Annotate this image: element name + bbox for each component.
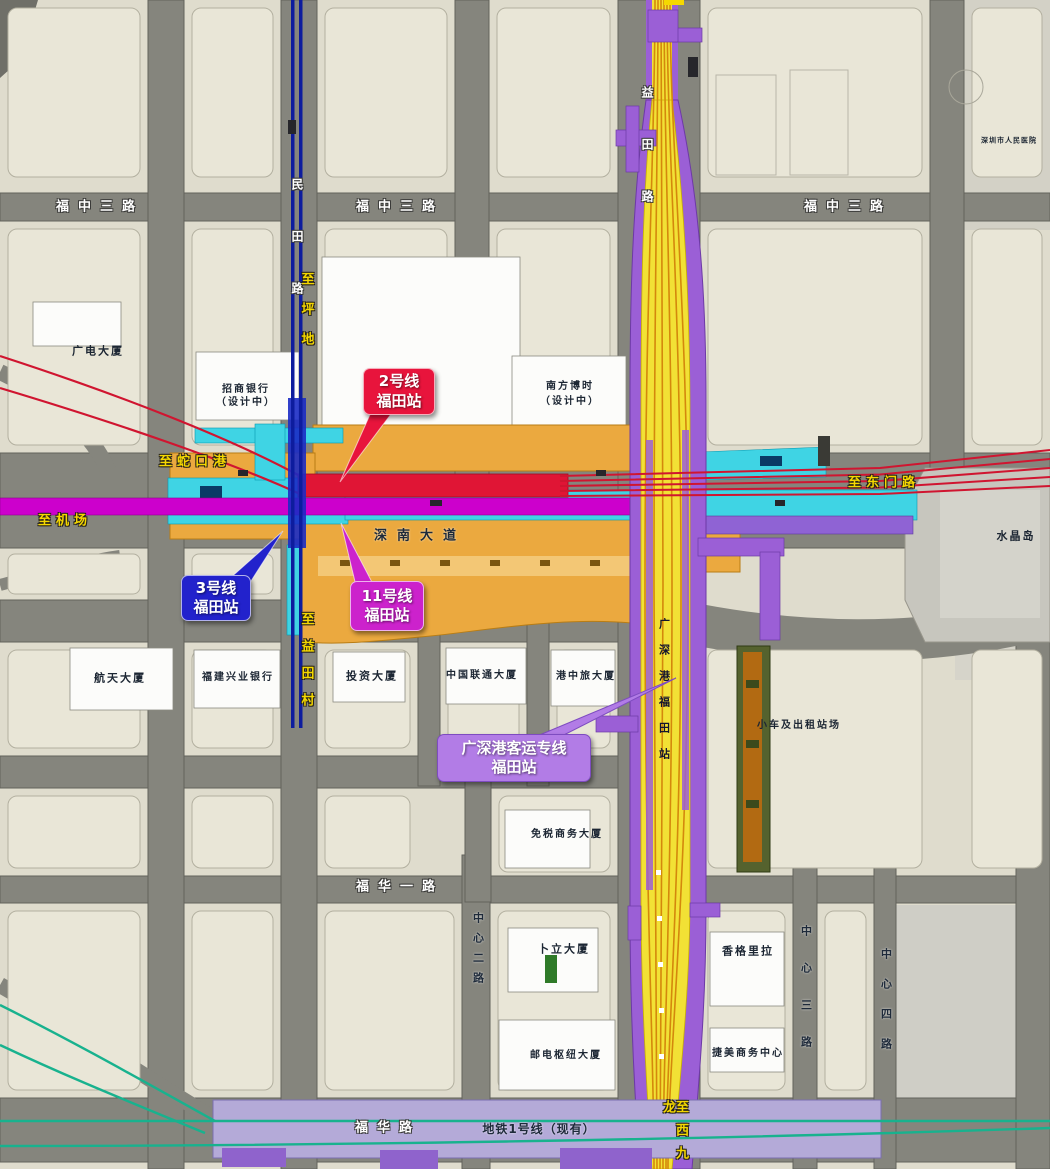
transit-plan-map: 2号线 福田站 3号线 福田站 11号线 福田站 广深港客运专线 福田站 福中三… <box>0 0 1050 1169</box>
direction-label-west-kowloon: 至西九龙 <box>661 1100 687 1169</box>
building-label-jiemei-center: 捷美商务中心 <box>712 1049 784 1059</box>
road-label-fuzhong3-east: 福中三路 <box>804 201 892 214</box>
road-label-fuzhong3-west: 福中三路 <box>56 201 144 214</box>
direction-label-dongmen: 至东门路 <box>848 477 920 490</box>
callout-line2-line2: 福田站 <box>364 392 434 412</box>
road-label-yitian: 益田路 <box>641 86 653 242</box>
road-label-zhongxin4: 中心四路 <box>881 948 892 1068</box>
road-label-fuzhong3-mid: 福中三路 <box>356 201 444 214</box>
direction-label-shekou-port: 至蛇口港 <box>159 456 231 469</box>
area-label-crystal-island: 水晶岛 <box>997 531 1036 542</box>
road-label-zhongxin3: 中心三路 <box>801 925 812 1073</box>
metro-line1-existing-label: 地铁1号线（现有） <box>482 1123 595 1135</box>
building-label-touzi: 投资大厦 <box>346 671 398 682</box>
building-label-buli: 卜立大厦 <box>538 944 590 955</box>
area-label-car-taxi-yard: 小车及出租站场 <box>757 721 841 731</box>
callout-hsr-line1: 广深港客运专线 <box>438 739 590 759</box>
direction-label-yitiancun: 至益田村 <box>300 612 313 720</box>
callout-line11-futian-station: 11号线 福田站 <box>350 581 424 631</box>
direction-label-airport: 至机场 <box>38 515 92 528</box>
building-label-youdian-hub: 邮电枢纽大厦 <box>530 1051 602 1061</box>
hsr-station-vertical-label: 广深港福田站 <box>659 618 670 774</box>
road-label-zhongxin2: 中心二路 <box>473 912 484 992</box>
callout-line3-line1: 3号线 <box>182 579 250 599</box>
callout-line3-futian-station: 3号线 福田站 <box>181 575 251 621</box>
building-label-nanfang-note: （设计中） <box>540 397 600 407</box>
building-label-mianshui: 免税商务大厦 <box>531 830 603 840</box>
building-label-gangzhonglv: 港中旅大厦 <box>556 672 616 682</box>
road-label-fuhua: 福华路 <box>355 1122 421 1135</box>
direction-label-pingdi: 至坪地 <box>300 272 313 362</box>
callout-hsr-line2: 福田站 <box>438 758 590 778</box>
building-label-nanfang-boshi: 南方博时 <box>546 382 594 392</box>
building-label-shangrila: 香格里拉 <box>722 946 774 957</box>
building-label-zhaoshang-note: （设计中） <box>216 398 276 408</box>
building-label-renmin: 深圳市人民医院 <box>981 138 1037 145</box>
building-label-fujian-xingye-bank: 福建兴业银行 <box>202 673 274 683</box>
callout-line11-line2: 福田站 <box>351 606 423 626</box>
callout-hsr-futian-station: 广深港客运专线 福田站 <box>437 734 591 782</box>
callout-line2-line1: 2号线 <box>364 372 434 392</box>
building-label-guangdian: 广电大厦 <box>72 346 124 357</box>
building-label-zhaoshang-bank: 招商银行 <box>222 385 270 395</box>
road-label-fuhua1: 福华一路 <box>356 881 444 894</box>
callout-line3-line2: 福田站 <box>182 598 250 618</box>
building-label-china-unicom: 中国联通大厦 <box>446 671 518 681</box>
callout-line11-line1: 11号线 <box>351 587 423 607</box>
road-label-shennan-avenue: 深南大道 <box>374 530 466 543</box>
callout-line2-futian-station: 2号线 福田站 <box>363 368 435 415</box>
label-layer: 福中三路福中三路福中三路福华一路福华路民田路益田路深南大道地铁1号线（现有）中心… <box>0 0 1050 1169</box>
building-label-hangtian: 航天大厦 <box>94 673 146 684</box>
